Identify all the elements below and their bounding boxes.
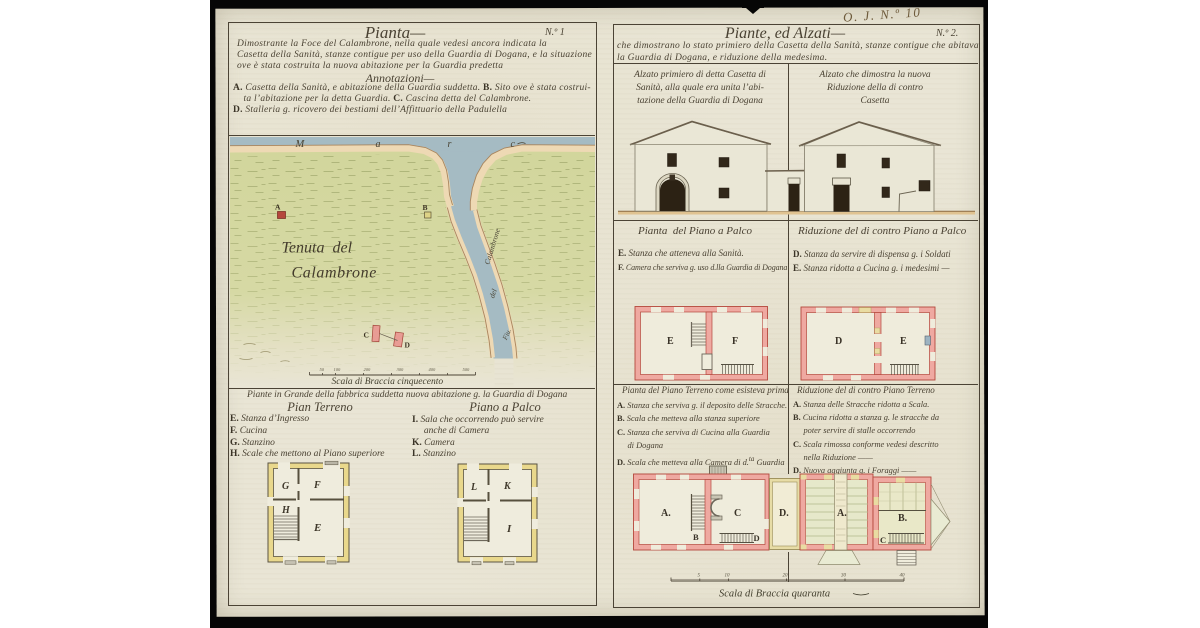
svg-text:C: C	[363, 330, 368, 339]
svg-text:C: C	[880, 535, 886, 545]
svg-text:100: 100	[333, 367, 341, 372]
svg-text:Scala di Braccia quaranta: Scala di Braccia quaranta	[719, 589, 830, 600]
svg-text:r: r	[447, 139, 451, 150]
svg-text:A.: A.	[661, 508, 671, 519]
svg-text:L: L	[470, 482, 477, 493]
svg-text:D: D	[404, 340, 410, 349]
svg-text:G: G	[282, 481, 290, 492]
svg-text:D.: D.	[779, 508, 789, 519]
svg-text:C: C	[734, 508, 741, 519]
svg-text:B.: B.	[898, 513, 908, 524]
svg-text:I: I	[506, 523, 512, 535]
svg-text:500: 500	[462, 367, 470, 372]
svg-text:E: E	[313, 522, 321, 534]
svg-text:A.: A.	[837, 508, 847, 519]
svg-text:10: 10	[725, 574, 731, 579]
svg-text:E: E	[900, 336, 907, 347]
svg-text:c: c	[510, 139, 515, 150]
svg-text:Tenuta del: Tenuta del	[281, 239, 352, 256]
svg-text:F: F	[732, 336, 738, 347]
svg-text:H: H	[281, 505, 291, 516]
svg-text:200: 200	[363, 367, 371, 372]
svg-text:Calambrone: Calambrone	[291, 264, 376, 281]
svg-text:30: 30	[841, 574, 847, 579]
svg-text:D: D	[835, 336, 842, 347]
svg-text:B: B	[422, 203, 427, 212]
svg-text:D: D	[754, 533, 760, 543]
svg-text:40: 40	[900, 574, 906, 579]
svg-text:A: A	[275, 202, 281, 211]
svg-text:300: 300	[396, 367, 404, 372]
svg-text:K: K	[503, 481, 512, 492]
svg-text:F: F	[313, 480, 321, 491]
svg-text:400: 400	[428, 367, 436, 372]
svg-text:B: B	[693, 532, 699, 542]
svg-text:20: 20	[783, 574, 789, 579]
svg-text:a: a	[375, 139, 380, 150]
svg-text:E: E	[667, 336, 674, 347]
svg-text:M: M	[294, 139, 305, 150]
svg-text:5: 5	[698, 574, 701, 579]
svg-text:50: 50	[319, 367, 324, 372]
svg-text:Scala di Braccia cinquecento: Scala di Braccia cinquecento	[331, 377, 443, 387]
